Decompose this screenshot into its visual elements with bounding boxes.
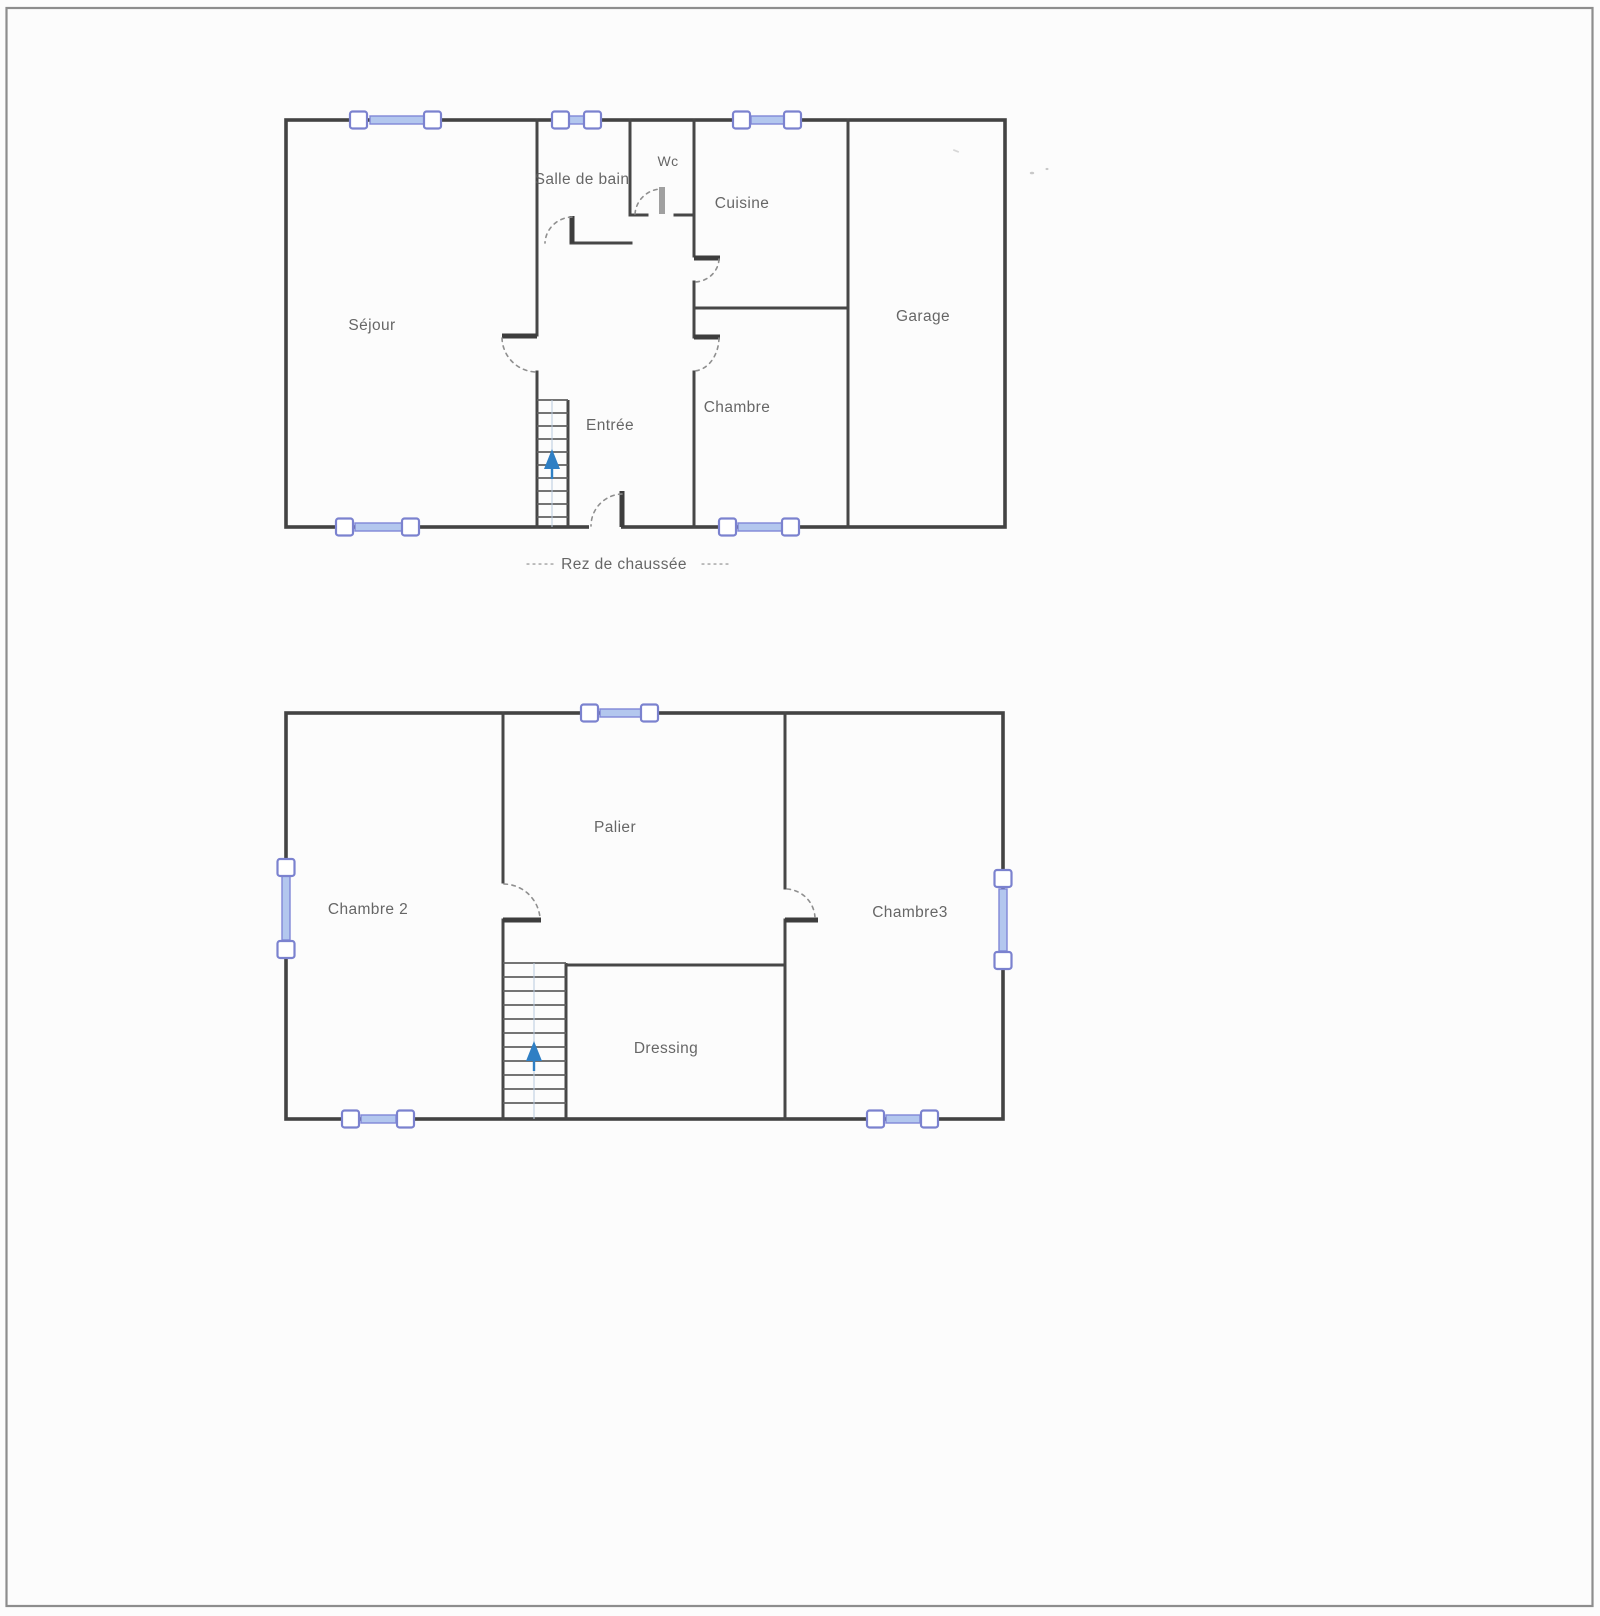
scan-speck [1046,168,1049,170]
scan-speck [1030,172,1034,175]
paper-background [0,0,1600,1616]
room-label-cuisine: Cuisine [715,195,770,212]
scanned-page: Séjour Salle de bain Wc Cuisine Garage E… [0,0,1600,1616]
room-label-garage: Garage [896,308,950,325]
room-label-chambre3: Chambre3 [872,904,948,921]
caption-dashes-right: ----- [701,556,731,570]
room-label-dressing: Dressing [634,1040,698,1057]
room-label-wc: Wc [657,153,678,169]
room-label-salle-de-bain: Salle de bain [535,171,630,188]
front-door-opening [589,520,621,533]
room-label-entree: Entrée [586,417,634,434]
room-label-sejour: Séjour [348,317,395,334]
room-label-chambre: Chambre [704,399,771,416]
room-label-palier: Palier [594,819,636,836]
room-label-chambre2: Chambre 2 [328,901,408,918]
floor-caption-label: Rez de chaussée [561,556,687,573]
floor-plan-scan: Séjour Salle de bain Wc Cuisine Garage E… [0,0,1600,1616]
caption-dashes-left: ----- [526,556,556,570]
